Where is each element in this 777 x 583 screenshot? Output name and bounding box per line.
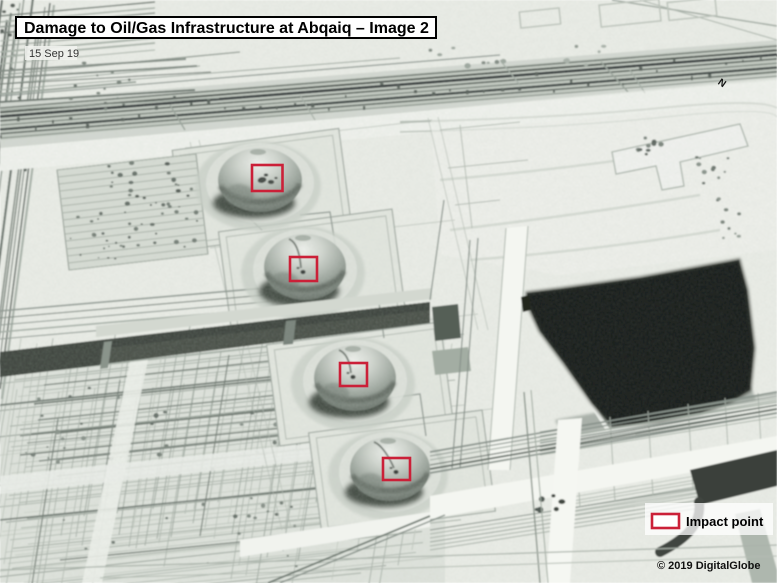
svg-text:15 Sep 19: 15 Sep 19 [29, 48, 79, 60]
svg-text:© 2019 DigitalGlobe: © 2019 DigitalGlobe [657, 560, 760, 572]
svg-text:Damage to Oil/Gas Infrastructu: Damage to Oil/Gas Infrastructure at Abqa… [24, 20, 429, 37]
svg-text:Impact point: Impact point [686, 514, 764, 529]
